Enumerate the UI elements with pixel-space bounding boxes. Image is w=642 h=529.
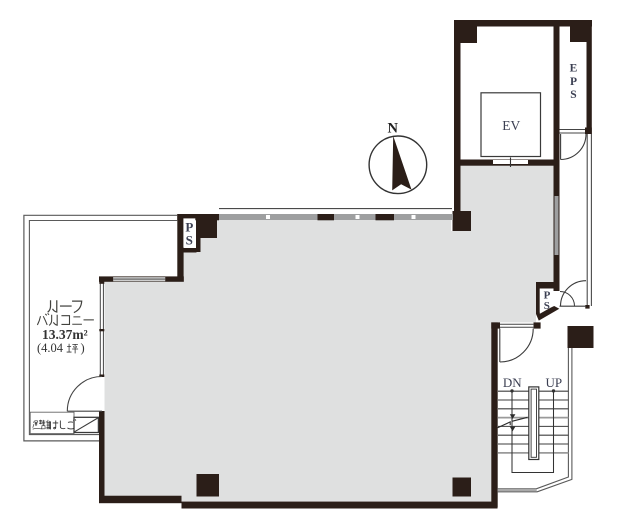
svg-text:(4.04: (4.04 [37,341,64,355]
svg-text:13.37m²: 13.37m² [42,327,88,342]
svg-text:EV: EV [502,118,520,133]
svg-text:S: S [544,300,550,312]
svg-text:S: S [570,89,576,101]
svg-text:): ) [81,341,85,355]
svg-text:P: P [570,76,577,88]
svg-text:S: S [186,233,193,248]
svg-text:N: N [387,121,398,137]
svg-text:UP: UP [545,375,562,390]
svg-text:E: E [570,63,578,75]
svg-text:DN: DN [503,375,522,390]
